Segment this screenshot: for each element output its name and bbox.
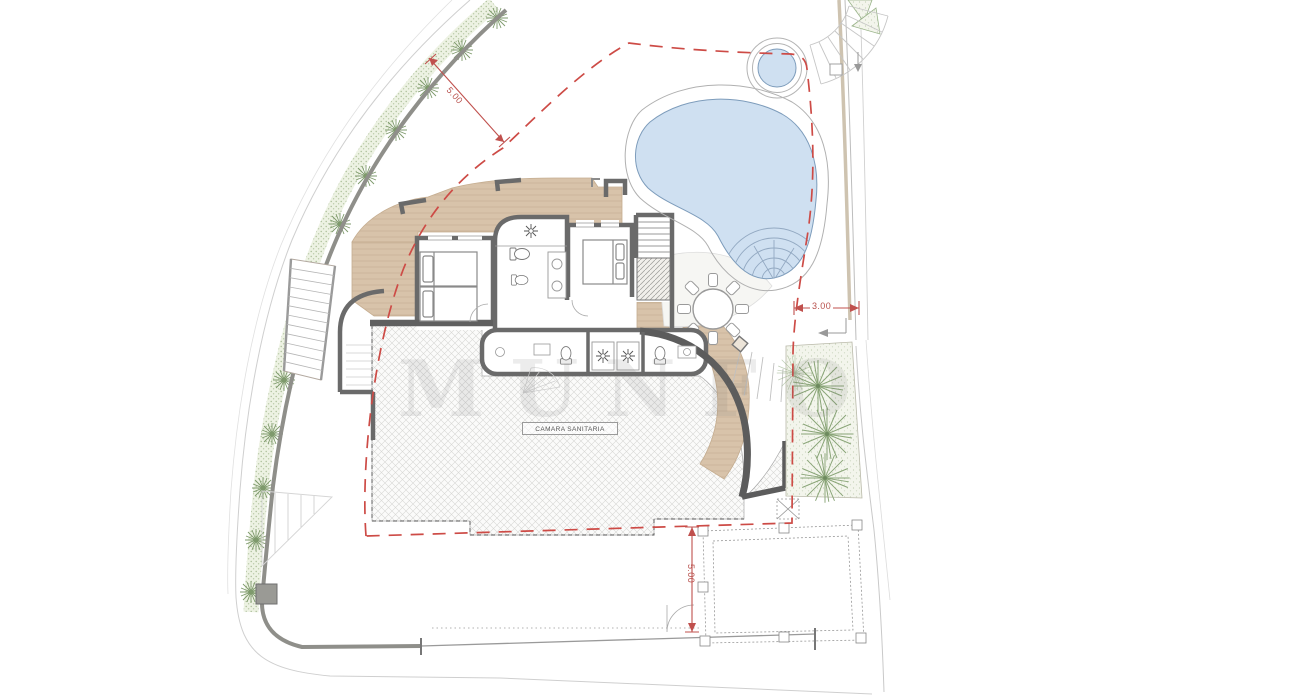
- garage-dotted-outline: [667, 499, 866, 646]
- dimension-label-right: 3.00: [810, 301, 833, 311]
- stair-shaft-hatch: [637, 258, 670, 300]
- dimension-line-top-left: [429, 58, 504, 142]
- boundary-pillar: [256, 584, 277, 604]
- plot-entrance-arrow: [818, 318, 846, 337]
- garden-stair-left: [284, 259, 335, 380]
- floor-plan-canvas: MUNFO 5.00 3.00 5.00 CAMARA SANITARIA: [0, 0, 1290, 698]
- terrace-left-wing: [352, 242, 418, 316]
- palm-planter: [777, 342, 862, 503]
- site-plan-drawing: [0, 0, 1290, 698]
- stair-down-arrow: [854, 64, 862, 72]
- dining-table: [693, 289, 733, 329]
- small-stair: [346, 345, 372, 385]
- double-bed: [583, 240, 627, 284]
- twin-beds: [420, 252, 477, 321]
- dimension-label-bottom: 5.00: [686, 564, 696, 583]
- entrance-fan-stairs: [810, 0, 888, 84]
- room-label-camara-sanitaria: CAMARA SANITARIA: [522, 422, 618, 435]
